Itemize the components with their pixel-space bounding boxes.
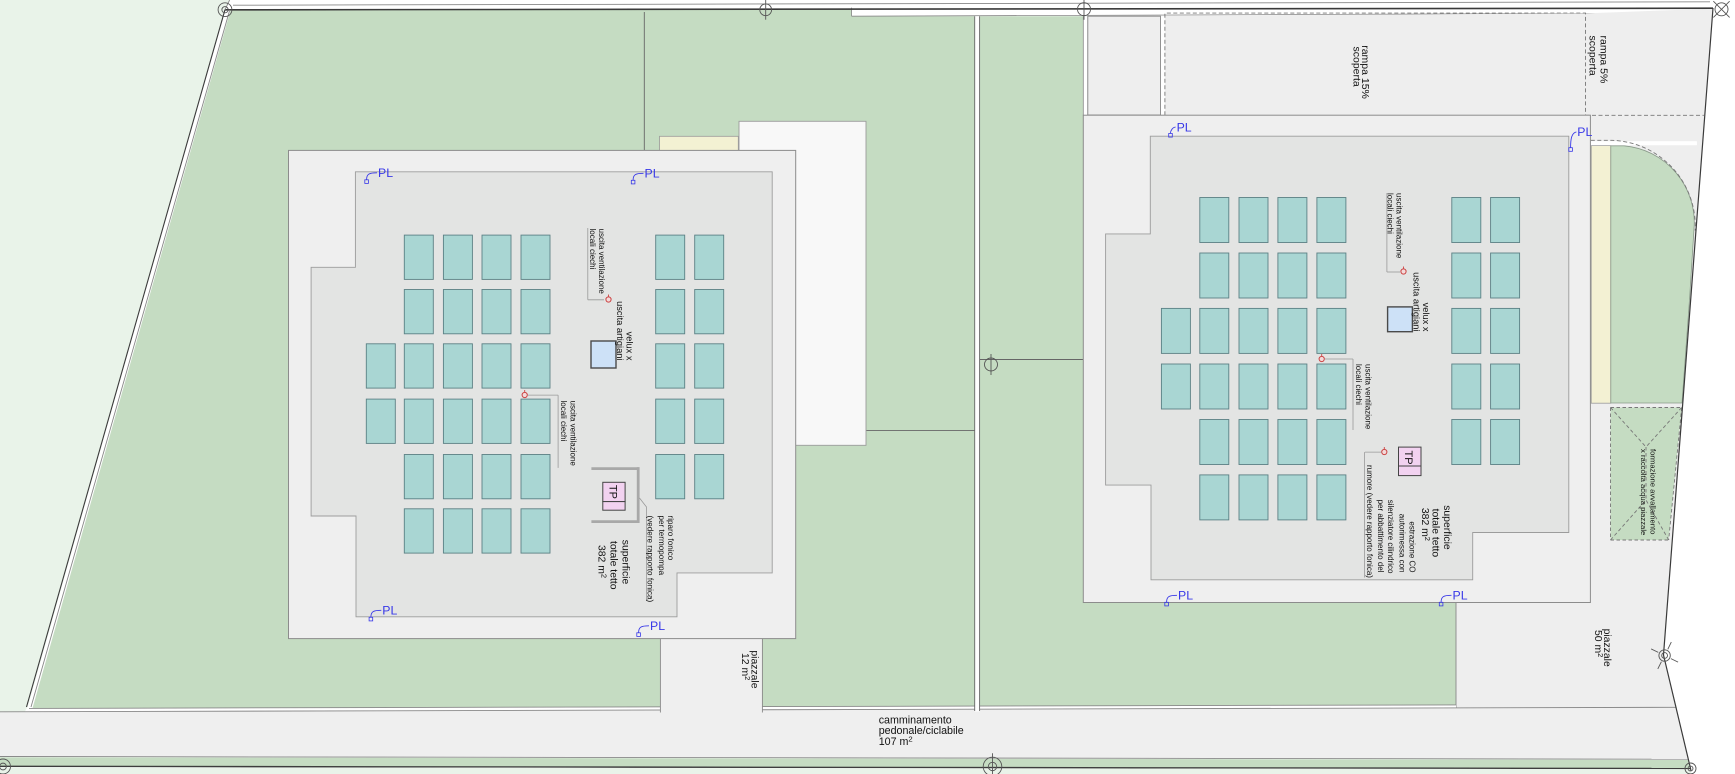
svg-text:uscita artigiani: uscita artigiani (615, 301, 625, 360)
svg-text:PL: PL (378, 166, 393, 180)
svg-text:uscita ventilazione: uscita ventilazione (597, 229, 606, 295)
svg-text:uscita ventilazione: uscita ventilazione (1395, 193, 1404, 259)
svg-text:locali ciechi: locali ciechi (1354, 364, 1363, 405)
svg-text:per abbattimento del: per abbattimento del (1376, 500, 1385, 573)
svg-text:107 m2: 107 m2 (879, 735, 913, 748)
svg-text:PL: PL (1577, 125, 1592, 139)
svg-text:PL: PL (382, 604, 397, 618)
svg-text:PL: PL (1177, 120, 1192, 134)
svg-text:uscita ventilazione: uscita ventilazione (569, 401, 578, 467)
svg-text:formazione avvallamento: formazione avvallamento (1649, 449, 1658, 534)
svg-text:locali ciechi: locali ciechi (559, 401, 568, 442)
svg-text:382 m2: 382 m2 (1419, 508, 1432, 541)
svg-text:uscita artigiani: uscita artigiani (1412, 272, 1422, 331)
svg-text:PL: PL (650, 619, 665, 633)
svg-text:velux x: velux x (625, 332, 635, 361)
svg-text:TP: TP (1402, 451, 1414, 465)
svg-text:per termopompa: per termopompa (657, 516, 666, 576)
svg-text:estrazione CO: estrazione CO (1408, 521, 1417, 572)
svg-text:x raccolta acqua piazzale: x raccolta acqua piazzale (1639, 449, 1648, 535)
svg-text:382 m2: 382 m2 (596, 545, 609, 578)
svg-text:(vedere rapporto fonica): (vedere rapporto fonica) (646, 516, 655, 603)
svg-text:locali ciechi: locali ciechi (588, 229, 597, 270)
svg-text:locali ciechi: locali ciechi (1386, 193, 1395, 234)
svg-text:PL: PL (1178, 589, 1193, 603)
svg-text:uscita ventilazione: uscita ventilazione (1364, 364, 1373, 430)
svg-text:riparo fonico: riparo fonico (666, 516, 675, 561)
svg-text:superficie: superficie (620, 540, 631, 585)
svg-text:scoperta: scoperta (1587, 36, 1599, 76)
svg-text:TP: TP (607, 485, 619, 499)
svg-text:PL: PL (645, 167, 660, 181)
svg-text:totale tetto: totale tetto (608, 541, 619, 590)
svg-text:rumore (vedere rapporto fonica: rumore (vedere rapporto fonica) (1365, 465, 1374, 578)
svg-text:velux x: velux x (1421, 303, 1431, 332)
svg-text:superficie: superficie (1441, 505, 1452, 550)
svg-text:scoperta: scoperta (1350, 47, 1362, 87)
svg-text:silenziatore cilindrico: silenziatore cilindrico (1386, 500, 1395, 574)
svg-text:autorimessa con: autorimessa con (1398, 514, 1407, 573)
svg-text:PL: PL (1453, 589, 1468, 603)
